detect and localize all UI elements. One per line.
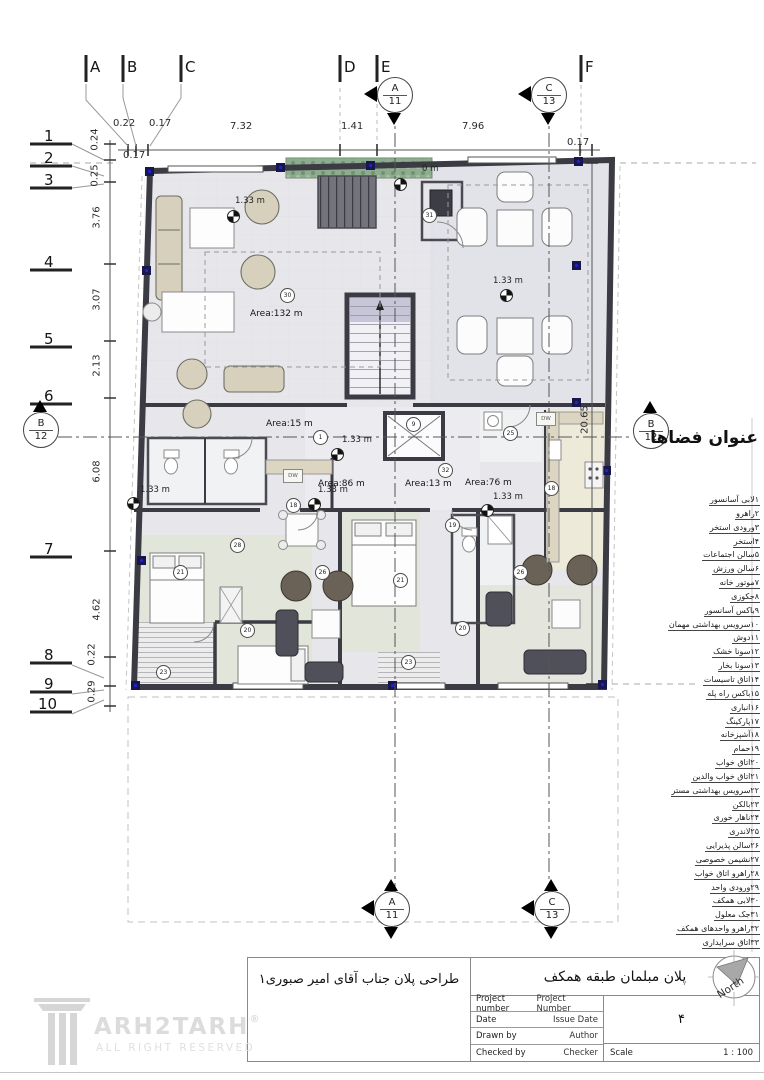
section-triangle-icon <box>643 401 657 413</box>
level-quadrant-icon <box>331 448 344 461</box>
room-marker: 1 <box>313 430 328 445</box>
spaces-legend-list: ۱لابی آسانسور۲راهرو۳ورودی استخر۴استخر۵سا… <box>638 487 760 944</box>
space-list-item: ۵سالن اجتماعات <box>638 542 760 556</box>
room-marker: 23 <box>401 655 416 670</box>
spaces-legend-title: عنوان فضاها <box>650 428 758 448</box>
grid-row-label: 8 <box>44 646 54 664</box>
titleblock-row: Drawn by Author <box>471 1028 603 1044</box>
section-triangle-icon <box>364 86 377 102</box>
scale-row: Scale 1 : 100 <box>603 1043 759 1061</box>
dim-top: 7.32 <box>230 121 252 132</box>
level-quadrant-icon <box>500 289 513 302</box>
level-label: 1.33 m <box>235 196 265 206</box>
room-marker: 30 <box>280 288 295 303</box>
section-marker-c13-top: C13 <box>531 77 567 113</box>
section-number: 13 <box>546 911 559 921</box>
space-list-item: ۸جکوزی <box>638 584 760 598</box>
grid-row-label: 7 <box>44 540 54 558</box>
room-marker: 19 <box>445 518 460 533</box>
grid-row-label: 2 <box>44 149 54 167</box>
room-marker: 20 <box>240 623 255 638</box>
dim-left: 3.07 <box>92 278 103 322</box>
space-list-item-label: ۳۳اتاق سرایداری <box>702 938 760 949</box>
room-marker: 20 <box>455 621 470 636</box>
grid-row-label: 4 <box>44 253 54 271</box>
space-list-item: ۱۸آشپزخانه <box>638 722 760 736</box>
titleblock-row-value: Project Number <box>537 994 598 1014</box>
dim-left: 6.08 <box>92 450 103 494</box>
exterior-stair <box>318 176 376 228</box>
section-triangle-icon <box>361 900 374 916</box>
space-list-item: ۴استخر <box>638 529 760 543</box>
room-marker: 9 <box>406 417 421 432</box>
space-list-item: ۷موتور خانه <box>638 570 760 584</box>
section-number: 12 <box>35 432 48 442</box>
scale-label: Scale <box>610 1048 633 1058</box>
area-label-elevator-lobby: Area:15 m <box>266 419 313 429</box>
registered-icon: ® <box>249 1014 261 1025</box>
client-title-cell: طراحی پلان جناب آقای امیر صبوری۱ <box>248 958 471 1061</box>
titleblock-row-label: Checked by <box>476 1048 526 1058</box>
space-list-item: ۹باکس آسانسور <box>638 598 760 612</box>
space-list-item: ۱۴اتاق تاسیسات <box>638 667 760 681</box>
client-title: طراحی پلان جناب آقای امیر صبوری۱ <box>259 972 460 987</box>
dim-left: 3.76 <box>92 196 103 240</box>
space-list-item: ۱۲سونا خشک <box>638 639 760 653</box>
brand-logo: ARH2TARH® ALL RIGHT RESERVED <box>34 994 246 1074</box>
level-quadrant-icon <box>227 210 240 223</box>
titleblock-row-label: Drawn by <box>476 1031 517 1041</box>
space-list-item: ۳ورودی استخر <box>638 515 760 529</box>
room-marker: 18 <box>544 481 559 496</box>
grid-col-label: C <box>185 58 195 76</box>
room-marker: 28 <box>230 538 245 553</box>
section-number: 11 <box>386 911 399 921</box>
level-quadrant-icon <box>127 497 140 510</box>
titleblock-table: Project number Project Number Date Issue… <box>471 996 603 1061</box>
space-list-item: ۱۶انباری <box>638 695 760 709</box>
wardrobe <box>220 587 242 623</box>
dim-right: 20.65 <box>580 398 591 442</box>
space-list-item: ۲راهرو <box>638 501 760 515</box>
space-list-item: ۲۷نشیمن خصوصی <box>638 847 760 861</box>
grid-col-label: D <box>344 58 356 76</box>
section-triangle-icon <box>544 927 558 939</box>
room-marker: 21 <box>393 573 408 588</box>
section-marker-b12-left: B12 <box>23 412 59 448</box>
section-number: 11 <box>389 97 402 107</box>
titleblock-row-value: Checker <box>563 1048 598 1058</box>
space-list-item: ۳۲راهرو واحدهای همکف <box>638 916 760 930</box>
area-label-lobby: Area:132 m <box>250 309 303 319</box>
space-list-item: ۲۵لاندری <box>638 819 760 833</box>
titleblock-row-label: Project number <box>476 994 537 1014</box>
room-marker: 25 <box>503 426 518 441</box>
space-list-item: ۱۰سرویس بهداشتی مهمان <box>638 612 760 626</box>
level-label: 1.33 m <box>493 492 523 502</box>
area-label-corridor: Area:13 m <box>405 479 452 489</box>
dim-left: 0.25 <box>90 154 101 198</box>
titleblock-row-value: Issue Date <box>553 1015 598 1025</box>
space-list-item: ۲۲سرویس بهداشتی مستر <box>638 778 760 792</box>
space-list-item: ۳۰لابی همکف <box>638 888 760 902</box>
grid-col-label: B <box>127 58 137 76</box>
section-letter: A <box>392 84 399 94</box>
stair-core <box>347 295 413 397</box>
space-list-item: ۱۵باکس راه پله <box>638 681 760 695</box>
space-list-item: ۲۰اتاق خواب <box>638 750 760 764</box>
space-list-item: ۱۹حمام <box>638 736 760 750</box>
section-triangle-icon <box>384 927 398 939</box>
space-list-item: ۲۱اتاق خواب والدین <box>638 764 760 778</box>
dishwasher-label: DW <box>283 469 303 483</box>
grid-col-label: E <box>381 58 390 76</box>
space-list-item: ۲۴ناهار خوری <box>638 805 760 819</box>
space-list-item: ۳۱جک معلول <box>638 902 760 916</box>
section-letter: A <box>389 898 396 908</box>
section-triangle-icon <box>518 86 531 102</box>
level-quadrant-icon <box>394 178 407 191</box>
space-list-item: ۱لابی آسانسور <box>638 487 760 501</box>
room-marker: 18 <box>286 498 301 513</box>
section-marker-c13-bottom: C13 <box>534 891 570 927</box>
space-list-item: ۱۷پارکینگ <box>638 709 760 723</box>
room-marker: 26 <box>315 565 330 580</box>
dim-top: 0.17 <box>149 118 171 129</box>
grid-row-label: 9 <box>44 675 54 693</box>
grid-row-label: 5 <box>44 330 54 348</box>
section-number: 13 <box>543 97 556 107</box>
area-label-unit-right: Area:76 m <box>465 478 512 488</box>
titleblock-row: Checked by Checker <box>471 1045 603 1061</box>
dim-top: 0.22 <box>113 118 135 129</box>
section-triangle-icon <box>387 113 401 125</box>
level-label: 1.33 m <box>318 485 348 495</box>
titleblock-row: Project number Project Number <box>471 996 603 1012</box>
room-marker: 26 <box>513 565 528 580</box>
space-list-item: ۶سالن ورزش <box>638 556 760 570</box>
section-letter: C <box>546 84 553 94</box>
dim-edge: 0.17 <box>123 150 145 161</box>
dim-left: 4.62 <box>92 588 103 632</box>
dim-edge: 0.17 <box>567 137 589 148</box>
title-block: طراحی پلان جناب آقای امیر صبوری۱ پلان مب… <box>247 957 760 1062</box>
level-label-zero: 0 m <box>422 164 438 174</box>
section-triangle-icon <box>384 879 398 891</box>
titleblock-row: Date Issue Date <box>471 1012 603 1028</box>
titleblock-row-label: Date <box>476 1015 496 1025</box>
section-triangle-icon <box>521 900 534 916</box>
section-marker-a11-bottom: A11 <box>374 891 410 927</box>
room-marker: 32 <box>438 463 453 478</box>
dishwasher-label: DW <box>536 412 556 426</box>
dim-left: 2.13 <box>92 344 103 388</box>
brand-tagline: ALL RIGHT RESERVED <box>96 1042 255 1054</box>
space-list-item: ۱۳سونا بخار <box>638 653 760 667</box>
level-label: 1.33 m <box>342 435 372 445</box>
grid-row-label: 1 <box>44 127 54 145</box>
dim-left: 0.29 <box>87 670 98 714</box>
room-marker: 21 <box>173 565 188 580</box>
section-letter: B <box>38 419 45 429</box>
grid-col-label: A <box>90 58 100 76</box>
level-quadrant-icon <box>308 498 321 511</box>
section-marker-a11-top: A11 <box>377 77 413 113</box>
section-triangle-icon <box>541 113 555 125</box>
space-list-item: ۲۸راهرو اتاق خواب <box>638 861 760 875</box>
level-label: 1.33 m <box>493 276 523 286</box>
room-marker: 23 <box>156 665 171 680</box>
grid-row-label: 10 <box>38 695 57 713</box>
scale-value: 1 : 100 <box>723 1048 753 1058</box>
space-list-item: ۲۶سالن پذیرایی <box>638 833 760 847</box>
titleblock-row-value: Author <box>569 1031 598 1041</box>
dim-top: 7.96 <box>462 121 484 132</box>
grid-col-label: F <box>585 58 594 76</box>
section-triangle-icon <box>544 879 558 891</box>
section-letter: C <box>549 898 556 908</box>
section-triangle-icon <box>33 400 47 412</box>
level-label: 1.33 m <box>140 485 170 495</box>
sheet-frame-line <box>0 1072 764 1073</box>
level-quadrant-icon <box>481 504 494 517</box>
brand-name: ARH2TARH® <box>94 1014 261 1040</box>
room-marker: 31 <box>422 208 437 223</box>
dim-top: 1.41 <box>341 121 363 132</box>
grid-row-label: 3 <box>44 171 54 189</box>
column-icon <box>34 994 90 1070</box>
drawing-sheet: A B C D E F 1 2 3 4 5 6 7 8 9 10 0.22 0.… <box>0 0 764 1080</box>
